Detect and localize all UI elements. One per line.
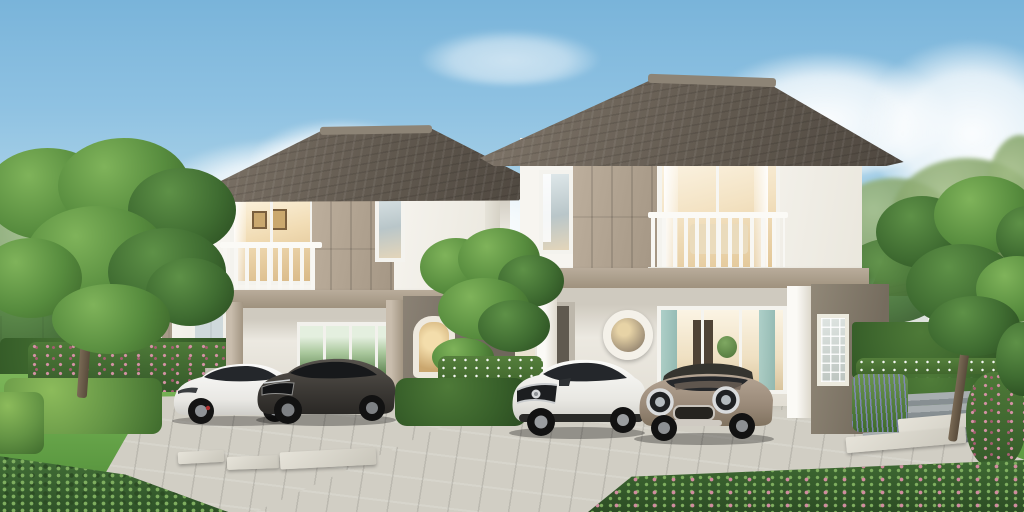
tall-window	[539, 170, 573, 254]
balcony-railing	[651, 212, 785, 274]
glass-block-panel	[817, 314, 849, 386]
picture-frame	[252, 211, 267, 229]
stepping-slab	[178, 450, 225, 464]
left-tree-foliage	[52, 284, 170, 354]
grey-wagon-car	[250, 342, 402, 430]
bronze-mini-car	[630, 346, 782, 448]
box-hedge	[0, 392, 44, 454]
curtain	[543, 174, 551, 242]
stepping-slab	[227, 455, 279, 470]
scene	[0, 0, 1024, 512]
carport-corner-column	[787, 286, 811, 418]
